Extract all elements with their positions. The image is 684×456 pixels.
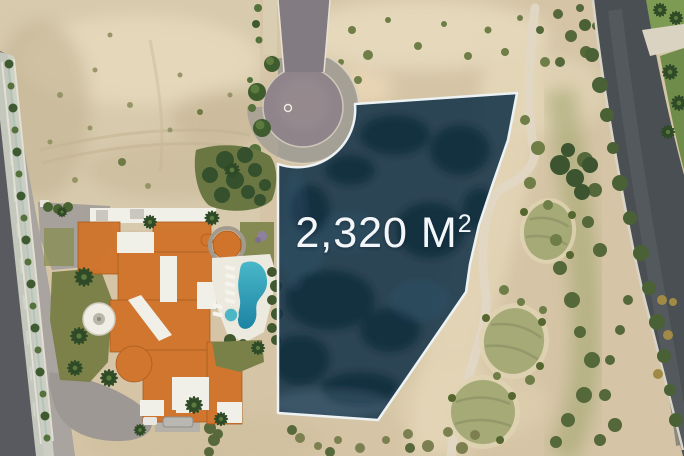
trailer bbox=[163, 417, 193, 427]
golf-green bbox=[446, 375, 520, 449]
turret bbox=[213, 231, 241, 259]
lot-area-label: 2,320 M2 bbox=[295, 209, 472, 257]
street-stem bbox=[278, 0, 330, 72]
spa bbox=[224, 308, 238, 322]
north-lawn bbox=[44, 228, 74, 266]
car bbox=[143, 417, 157, 425]
aerial-lot-photo: 2,320 M2 bbox=[0, 0, 684, 456]
sidewalk bbox=[263, 0, 277, 55]
